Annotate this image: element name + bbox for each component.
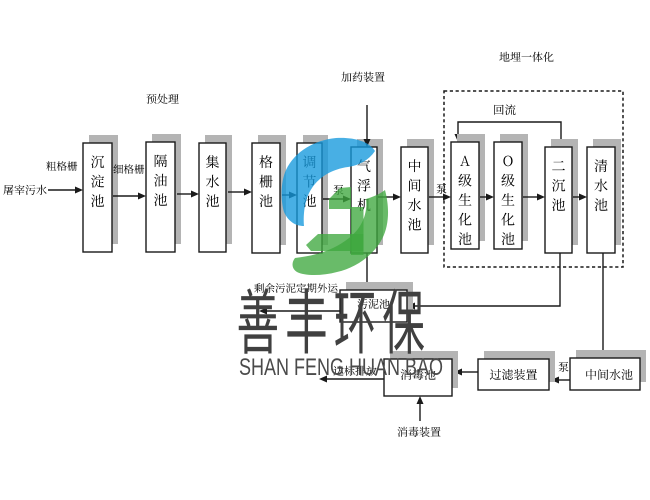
svg-text:SHAN FENG HUAN BAO: SHAN FENG HUAN BAO	[239, 354, 443, 381]
